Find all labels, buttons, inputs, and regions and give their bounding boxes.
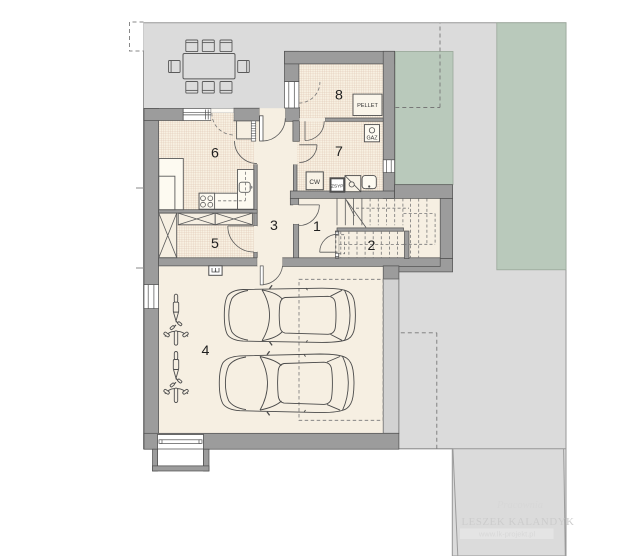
svg-text:7: 7 bbox=[335, 144, 343, 160]
svg-text:www.lk-projekt.pl: www.lk-projekt.pl bbox=[478, 530, 536, 539]
svg-text:1: 1 bbox=[313, 219, 321, 235]
svg-text:PELLET: PELLET bbox=[357, 103, 378, 109]
svg-text:Pracownia: Pracownia bbox=[496, 500, 543, 511]
svg-text:LESZEK KALANDYK: LESZEK KALANDYK bbox=[461, 516, 574, 528]
svg-text:6: 6 bbox=[211, 145, 219, 161]
svg-text:4: 4 bbox=[202, 343, 210, 359]
svg-text:5: 5 bbox=[211, 236, 219, 252]
svg-text:GAZ: GAZ bbox=[366, 135, 378, 141]
svg-text:ZSYP: ZSYP bbox=[331, 183, 343, 188]
svg-text:CW: CW bbox=[309, 179, 321, 186]
svg-text:2: 2 bbox=[368, 238, 376, 254]
svg-text:3: 3 bbox=[270, 218, 278, 234]
svg-text:8: 8 bbox=[335, 87, 343, 103]
